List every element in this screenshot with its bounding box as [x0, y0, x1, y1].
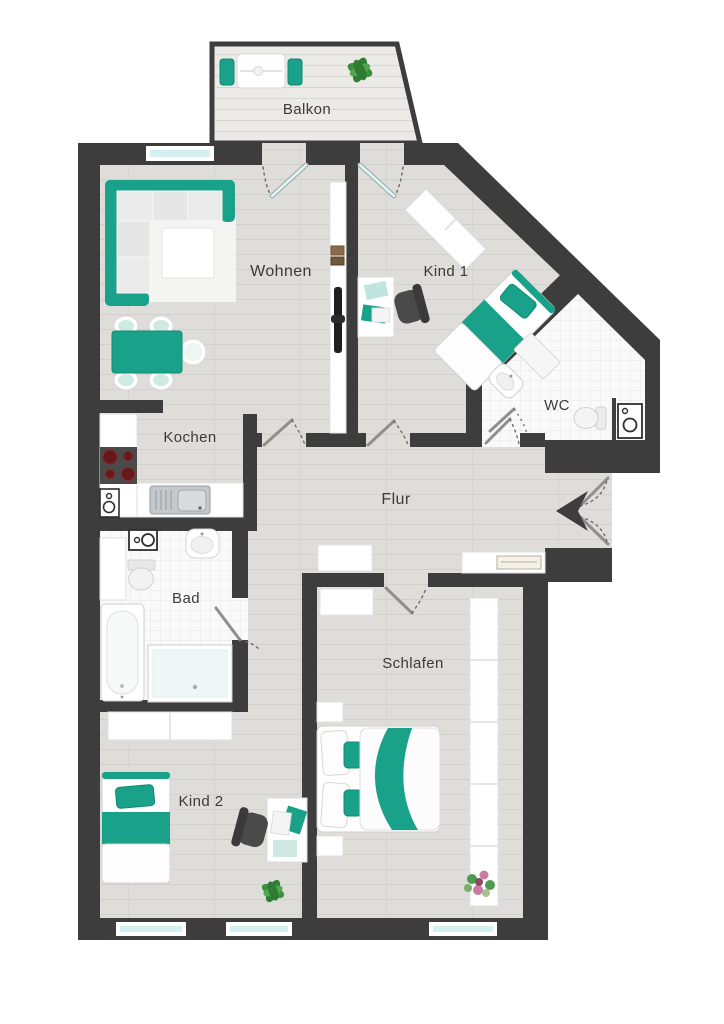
desk-kind2	[267, 798, 307, 862]
bad-washer	[129, 530, 157, 550]
table-knob	[254, 67, 263, 76]
label-kind1: Kind 1	[424, 263, 469, 280]
wall-wohnen-kochen	[100, 400, 163, 413]
hall-cabinet	[318, 545, 372, 571]
nightstand-bottom	[317, 836, 343, 856]
bed-kind2	[102, 772, 170, 884]
floor-plan: Balkon	[0, 0, 724, 1024]
wc-toilet	[574, 407, 606, 429]
corridor-floor	[248, 531, 302, 712]
label-kochen: Kochen	[163, 429, 216, 446]
wardrobe-schlafen	[470, 598, 498, 906]
oven	[100, 489, 119, 517]
cooktop	[100, 447, 137, 484]
coffee-table	[162, 228, 214, 278]
hall-sideboard	[462, 552, 545, 573]
label-flur: Flur	[381, 491, 410, 508]
bad-sink	[186, 529, 219, 558]
wall-kochen-bad	[78, 517, 257, 531]
books	[331, 246, 344, 265]
schlafen-dresser	[320, 589, 373, 615]
nightstand-top	[317, 702, 343, 722]
wall-wohnen-kind1	[345, 165, 358, 447]
desk-kind1	[358, 277, 394, 337]
shower	[148, 645, 232, 702]
kitchen-sink	[150, 486, 210, 514]
bad-toilet	[128, 560, 155, 590]
bad-cabinet	[100, 538, 126, 600]
double-bed	[317, 726, 440, 832]
label-schlafen: Schlafen	[382, 655, 444, 672]
label-bad: Bad	[172, 590, 200, 607]
wall-kind2-schlafen	[302, 573, 317, 940]
label-wc: WC	[544, 397, 570, 414]
bathtub	[101, 604, 144, 701]
wall-entry-bottom	[545, 548, 612, 582]
balcony-chair-left	[220, 59, 234, 85]
dining-table	[112, 331, 182, 373]
balcony: Balkon	[212, 44, 420, 143]
label-wohnen: Wohnen	[250, 263, 312, 280]
wall-entry-top	[545, 440, 660, 473]
wall-schlafen-right	[523, 582, 548, 940]
label-balkon: Balkon	[283, 101, 331, 118]
balcony-chair-right	[288, 59, 302, 85]
label-kind2: Kind 2	[179, 793, 224, 810]
wall-kochen-flur	[243, 414, 257, 531]
wardrobe-kind2	[108, 712, 232, 740]
